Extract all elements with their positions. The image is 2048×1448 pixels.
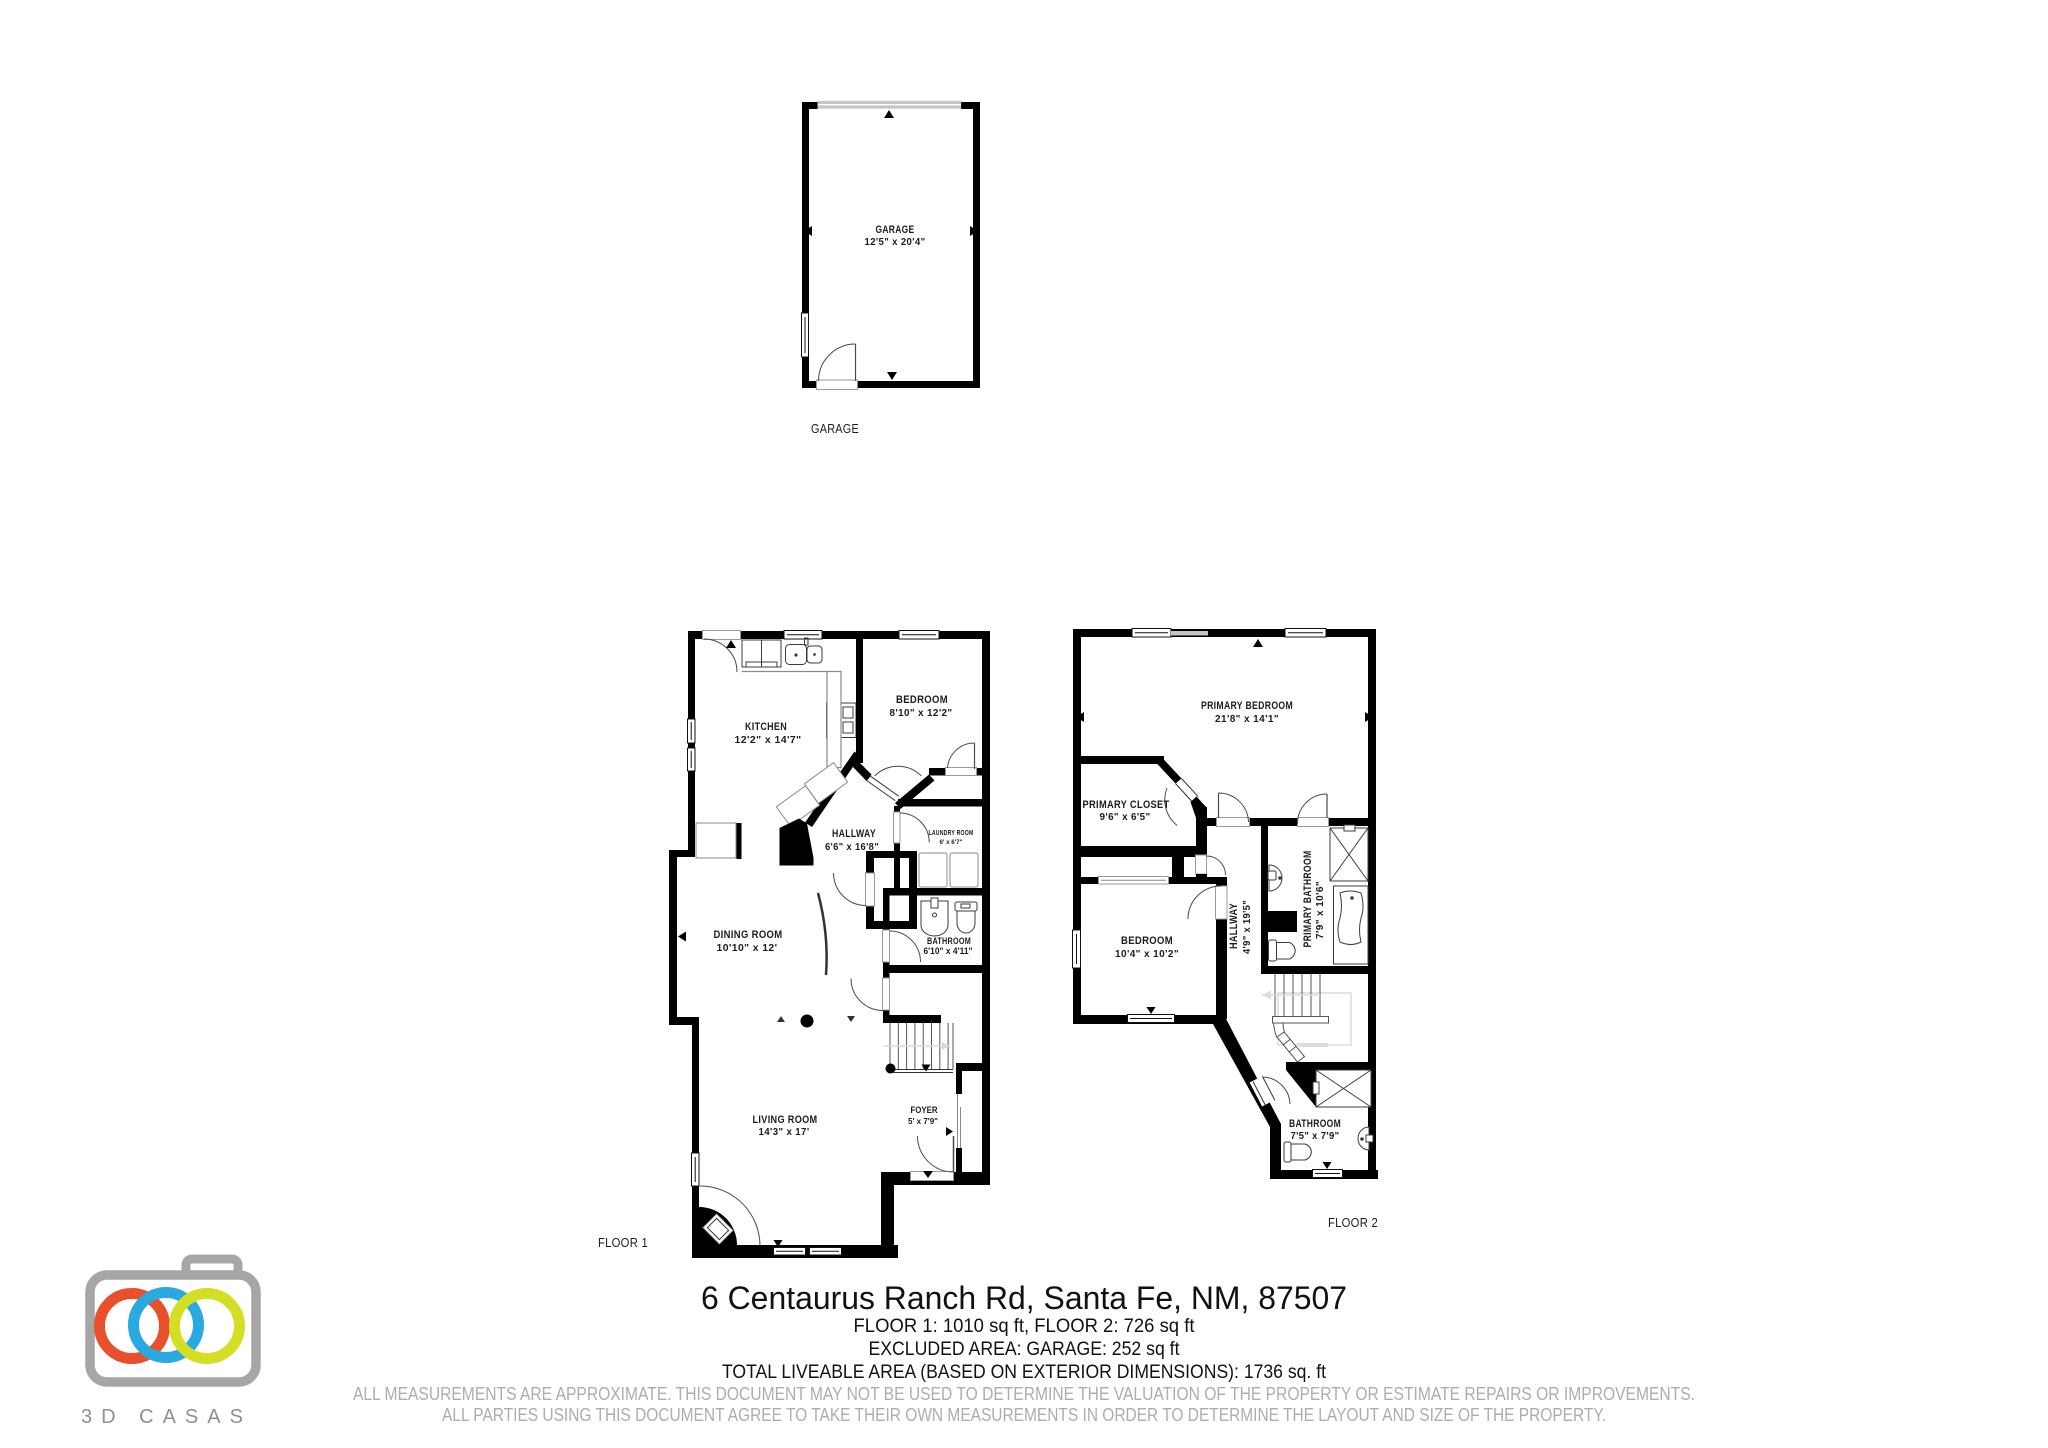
svg-text:12'5" x 20'4": 12'5" x 20'4": [865, 236, 926, 248]
svg-text:6'10" x 4'11": 6'10" x 4'11": [924, 946, 973, 956]
svg-text:21'8" x 14'1": 21'8" x 14'1": [1215, 713, 1279, 725]
svg-text:10'4" x 10'2": 10'4" x 10'2": [1115, 948, 1179, 960]
svg-text:5' x 7'9": 5' x 7'9": [908, 1116, 938, 1126]
svg-text:LIVING ROOM: LIVING ROOM: [753, 1114, 818, 1126]
svg-text:KITCHEN: KITCHEN: [745, 721, 787, 733]
svg-text:HALLWAY: HALLWAY: [832, 828, 876, 840]
svg-text:8'10" x 12'2": 8'10" x 12'2": [890, 707, 953, 719]
svg-text:6' x 6'7": 6' x 6'7": [940, 839, 963, 846]
svg-text:12'2" x 14'7": 12'2" x 14'7": [735, 734, 802, 746]
svg-text:PRIMARY BEDROOM: PRIMARY BEDROOM: [1201, 700, 1293, 712]
svg-text:GARAGE: GARAGE: [811, 421, 859, 436]
svg-text:7'9" x 10'6": 7'9" x 10'6": [1314, 881, 1326, 939]
svg-text:7'5" x 7'9": 7'5" x 7'9": [1291, 1130, 1340, 1142]
svg-text:4'9" x 19'5": 4'9" x 19'5": [1241, 900, 1253, 954]
svg-text:GARAGE: GARAGE: [876, 224, 915, 236]
svg-text:9'6" x 6'5": 9'6" x 6'5": [1100, 811, 1151, 823]
svg-text:10'10" x 12': 10'10" x 12': [717, 942, 778, 954]
svg-text:BATHROOM: BATHROOM: [1289, 1118, 1341, 1130]
svg-text:ALL PARTIES USING THIS DOCUMEN: ALL PARTIES USING THIS DOCUMENT AGREE TO…: [442, 1405, 1606, 1425]
svg-text:BEDROOM: BEDROOM: [896, 694, 948, 706]
svg-text:14'3" x 17': 14'3" x 17': [759, 1126, 810, 1138]
svg-text:ALL MEASUREMENTS ARE APPROXIMA: ALL MEASUREMENTS ARE APPROXIMATE. THIS D…: [353, 1384, 1695, 1404]
svg-text:LAUNDRY ROOM: LAUNDRY ROOM: [929, 828, 974, 837]
svg-text:3D CASAS: 3D CASAS: [81, 1406, 252, 1428]
svg-text:PRIMARY CLOSET: PRIMARY CLOSET: [1083, 799, 1170, 811]
svg-text:FLOOR 2: FLOOR 2: [1328, 1216, 1378, 1230]
svg-text:HALLWAY: HALLWAY: [1228, 903, 1240, 949]
svg-text:DINING ROOM: DINING ROOM: [714, 929, 783, 941]
svg-text:BEDROOM: BEDROOM: [1121, 935, 1173, 947]
svg-text:FOYER: FOYER: [911, 1105, 939, 1115]
svg-text:TOTAL LIVEABLE AREA (BASED ON: TOTAL LIVEABLE AREA (BASED ON EXTERIOR D…: [722, 1362, 1327, 1383]
svg-text:FLOOR 1: FLOOR 1: [598, 1236, 648, 1250]
svg-text:EXCLUDED AREA: GARAGE: 252 sq: EXCLUDED AREA: GARAGE: 252 sq ft: [869, 1339, 1181, 1360]
svg-text:6 Centaurus Ranch Rd, Santa Fe: 6 Centaurus Ranch Rd, Santa Fe, NM, 8750…: [701, 1280, 1347, 1316]
svg-text:PRIMARY BATHROOM: PRIMARY BATHROOM: [1302, 851, 1314, 948]
svg-text:FLOOR 1: 1010 sq ft, FLOOR 2:: FLOOR 1: 1010 sq ft, FLOOR 2: 726 sq ft: [854, 1316, 1196, 1337]
